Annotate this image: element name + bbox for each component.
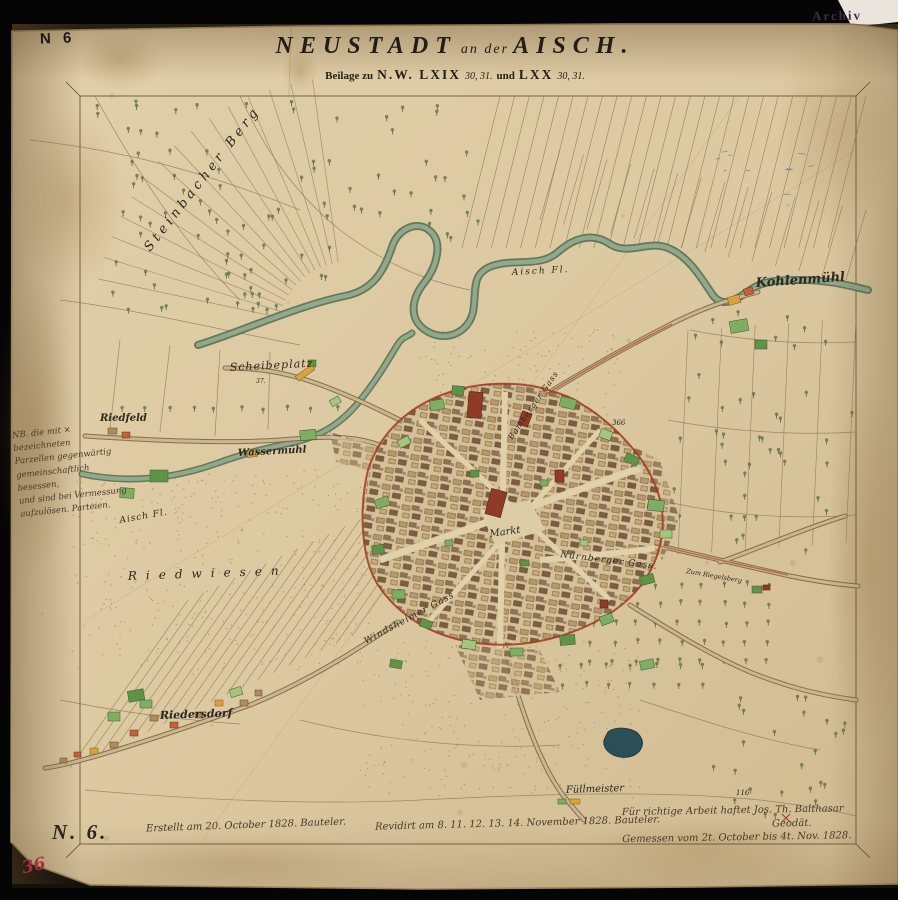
scanned-map-photo: Steinbacher Berg Aisch Fl. Kohlenmühl Sc… (0, 0, 898, 900)
archiv-stamp: Archiv (812, 8, 862, 25)
stain (90, 834, 390, 890)
subtitle-part: N.W. LXIX (377, 67, 461, 82)
inscription-right: Für richtige Arbeit haftet Jos. Th. Balt… (622, 802, 873, 847)
pond (604, 728, 643, 757)
title-end: AISCH. (513, 33, 634, 59)
map-title: NEUSTADT an der AISCH. (215, 33, 695, 60)
label-fuellmeister: Füllmeister (565, 783, 626, 796)
subtitle-part: und (497, 70, 515, 82)
corner-sheet-number: N. 6. (52, 820, 108, 845)
label-riedersdorf: Riedersdorf (159, 706, 235, 722)
margin-note: NB. die mit × bezeichneten Parzellen geg… (11, 418, 132, 521)
title-mid: an der (461, 42, 509, 57)
label-parcel-116: 116 (736, 789, 750, 797)
fuellmeister-building (570, 799, 580, 804)
label-parcel-366: 366 (612, 419, 626, 427)
stain (75, 30, 165, 90)
subtitle-part: Beilage zu (325, 70, 373, 82)
map-canvas: Steinbacher Berg Aisch Fl. Kohlenmühl Sc… (0, 0, 898, 900)
stain (15, 110, 125, 290)
title-main: NEUSTADT (276, 33, 457, 59)
subtitle-part: LXX (519, 67, 554, 82)
sheet-number-stamp: N 6 (40, 29, 76, 47)
label-scheibeplatz-no: 37. (256, 378, 266, 385)
subtitle-part: 30, 31. (557, 71, 585, 82)
map-subtitle: Beilage zu N.W. LXIX 30, 31. und LXX 30,… (215, 66, 695, 84)
subtitle-part: 30, 31. (465, 71, 493, 82)
stain (775, 20, 895, 240)
